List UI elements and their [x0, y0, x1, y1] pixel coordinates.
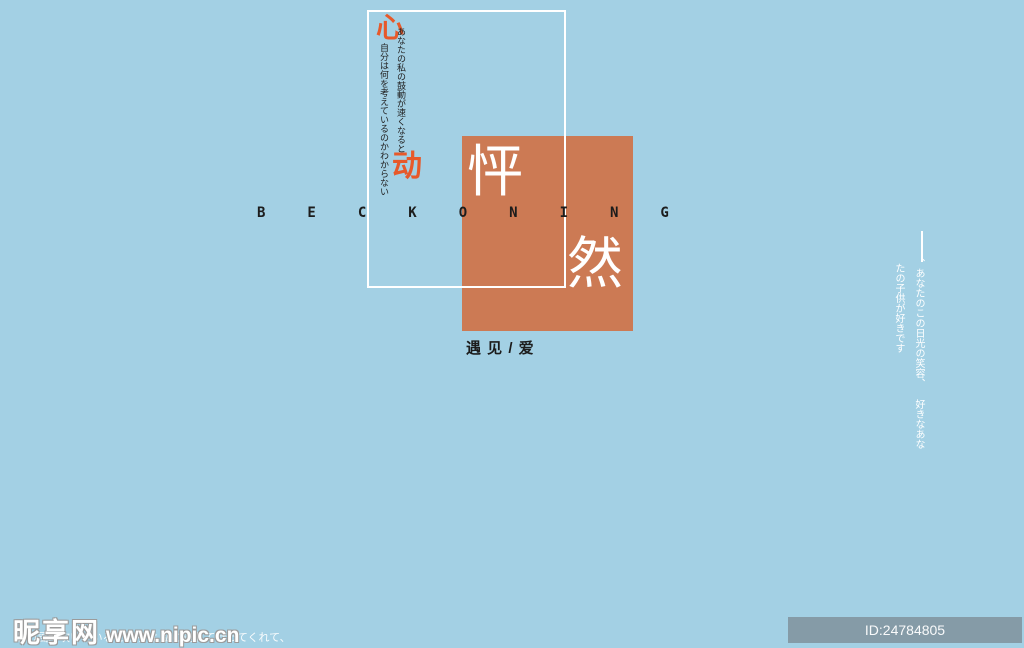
beckoning-headline: BECKONING	[257, 205, 711, 221]
site-watermark: 昵享网www.nipic.cn	[13, 611, 239, 648]
right-vertical-text-col2: たの子供が好きです	[893, 263, 903, 353]
left-vertical-text-col2: 自分は何を考えているのかわからない	[379, 43, 388, 196]
peng-character: 怦	[467, 144, 523, 200]
right-vertical-text-col1: 、あなたのこの日光の笑容、 好きなあな	[913, 258, 923, 449]
meet-love-caption: 遇 见 / 爱	[466, 337, 535, 358]
poster-canvas: 心 あなたの私の鼓動が速くなると 自分は何を考えているのかわからない 动 怦 然…	[0, 0, 1024, 648]
site-name-logo: 昵享网	[13, 618, 100, 648]
left-vertical-text-col1: あなたの私の鼓動が速くなると	[396, 27, 405, 153]
move-character: 动	[392, 152, 422, 182]
image-id-badge: ID:24784805 NO:20200420173526488080	[788, 617, 1022, 643]
site-url-text: www.nipic.cn	[106, 624, 239, 647]
ran-character: 然	[567, 236, 623, 292]
